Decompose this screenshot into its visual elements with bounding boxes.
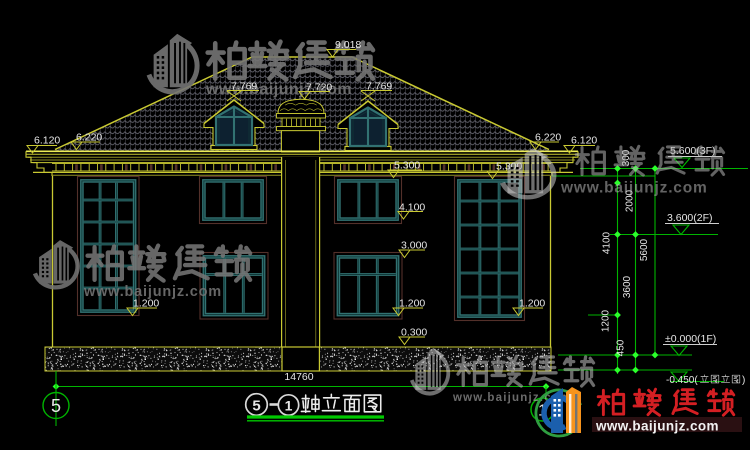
svg-text:6.220: 6.220 — [535, 132, 561, 144]
svg-text:5600: 5600 — [639, 238, 650, 261]
svg-text:3.000: 3.000 — [401, 240, 427, 252]
svg-text:1200: 1200 — [601, 309, 612, 332]
svg-text:6.120: 6.120 — [571, 135, 597, 147]
svg-text:7.769: 7.769 — [366, 81, 392, 93]
svg-text:5: 5 — [51, 396, 61, 416]
svg-text:7.769: 7.769 — [231, 81, 257, 93]
svg-text:1.200: 1.200 — [399, 298, 425, 310]
svg-text:6.220: 6.220 — [76, 132, 102, 144]
svg-text:4100: 4100 — [602, 231, 613, 254]
svg-text:1.200: 1.200 — [133, 298, 159, 310]
svg-text:0.300: 0.300 — [401, 327, 427, 339]
svg-text:www.baijunjz.com: www.baijunjz.com — [595, 419, 719, 434]
svg-text:14760: 14760 — [284, 371, 313, 383]
svg-text:1.200: 1.200 — [519, 298, 545, 310]
svg-text:±0.000(1F): ±0.000(1F) — [665, 333, 716, 345]
svg-text:-0.450(: -0.450( — [666, 375, 698, 386]
svg-text:7.720: 7.720 — [306, 82, 332, 94]
svg-text:9.018: 9.018 — [335, 39, 361, 51]
svg-text:4.100: 4.100 — [399, 202, 425, 214]
svg-text:6.120: 6.120 — [34, 135, 60, 147]
svg-text:www.baijunjz.com: www.baijunjz.com — [560, 180, 708, 197]
svg-text:3600: 3600 — [622, 275, 633, 298]
svg-text:3.600(2F): 3.600(2F) — [667, 212, 713, 224]
svg-text:5.300: 5.300 — [394, 160, 420, 172]
svg-text:450: 450 — [616, 339, 627, 356]
svg-text:1: 1 — [285, 398, 293, 414]
svg-text:): ) — [742, 375, 745, 386]
svg-text:5: 5 — [252, 398, 260, 415]
